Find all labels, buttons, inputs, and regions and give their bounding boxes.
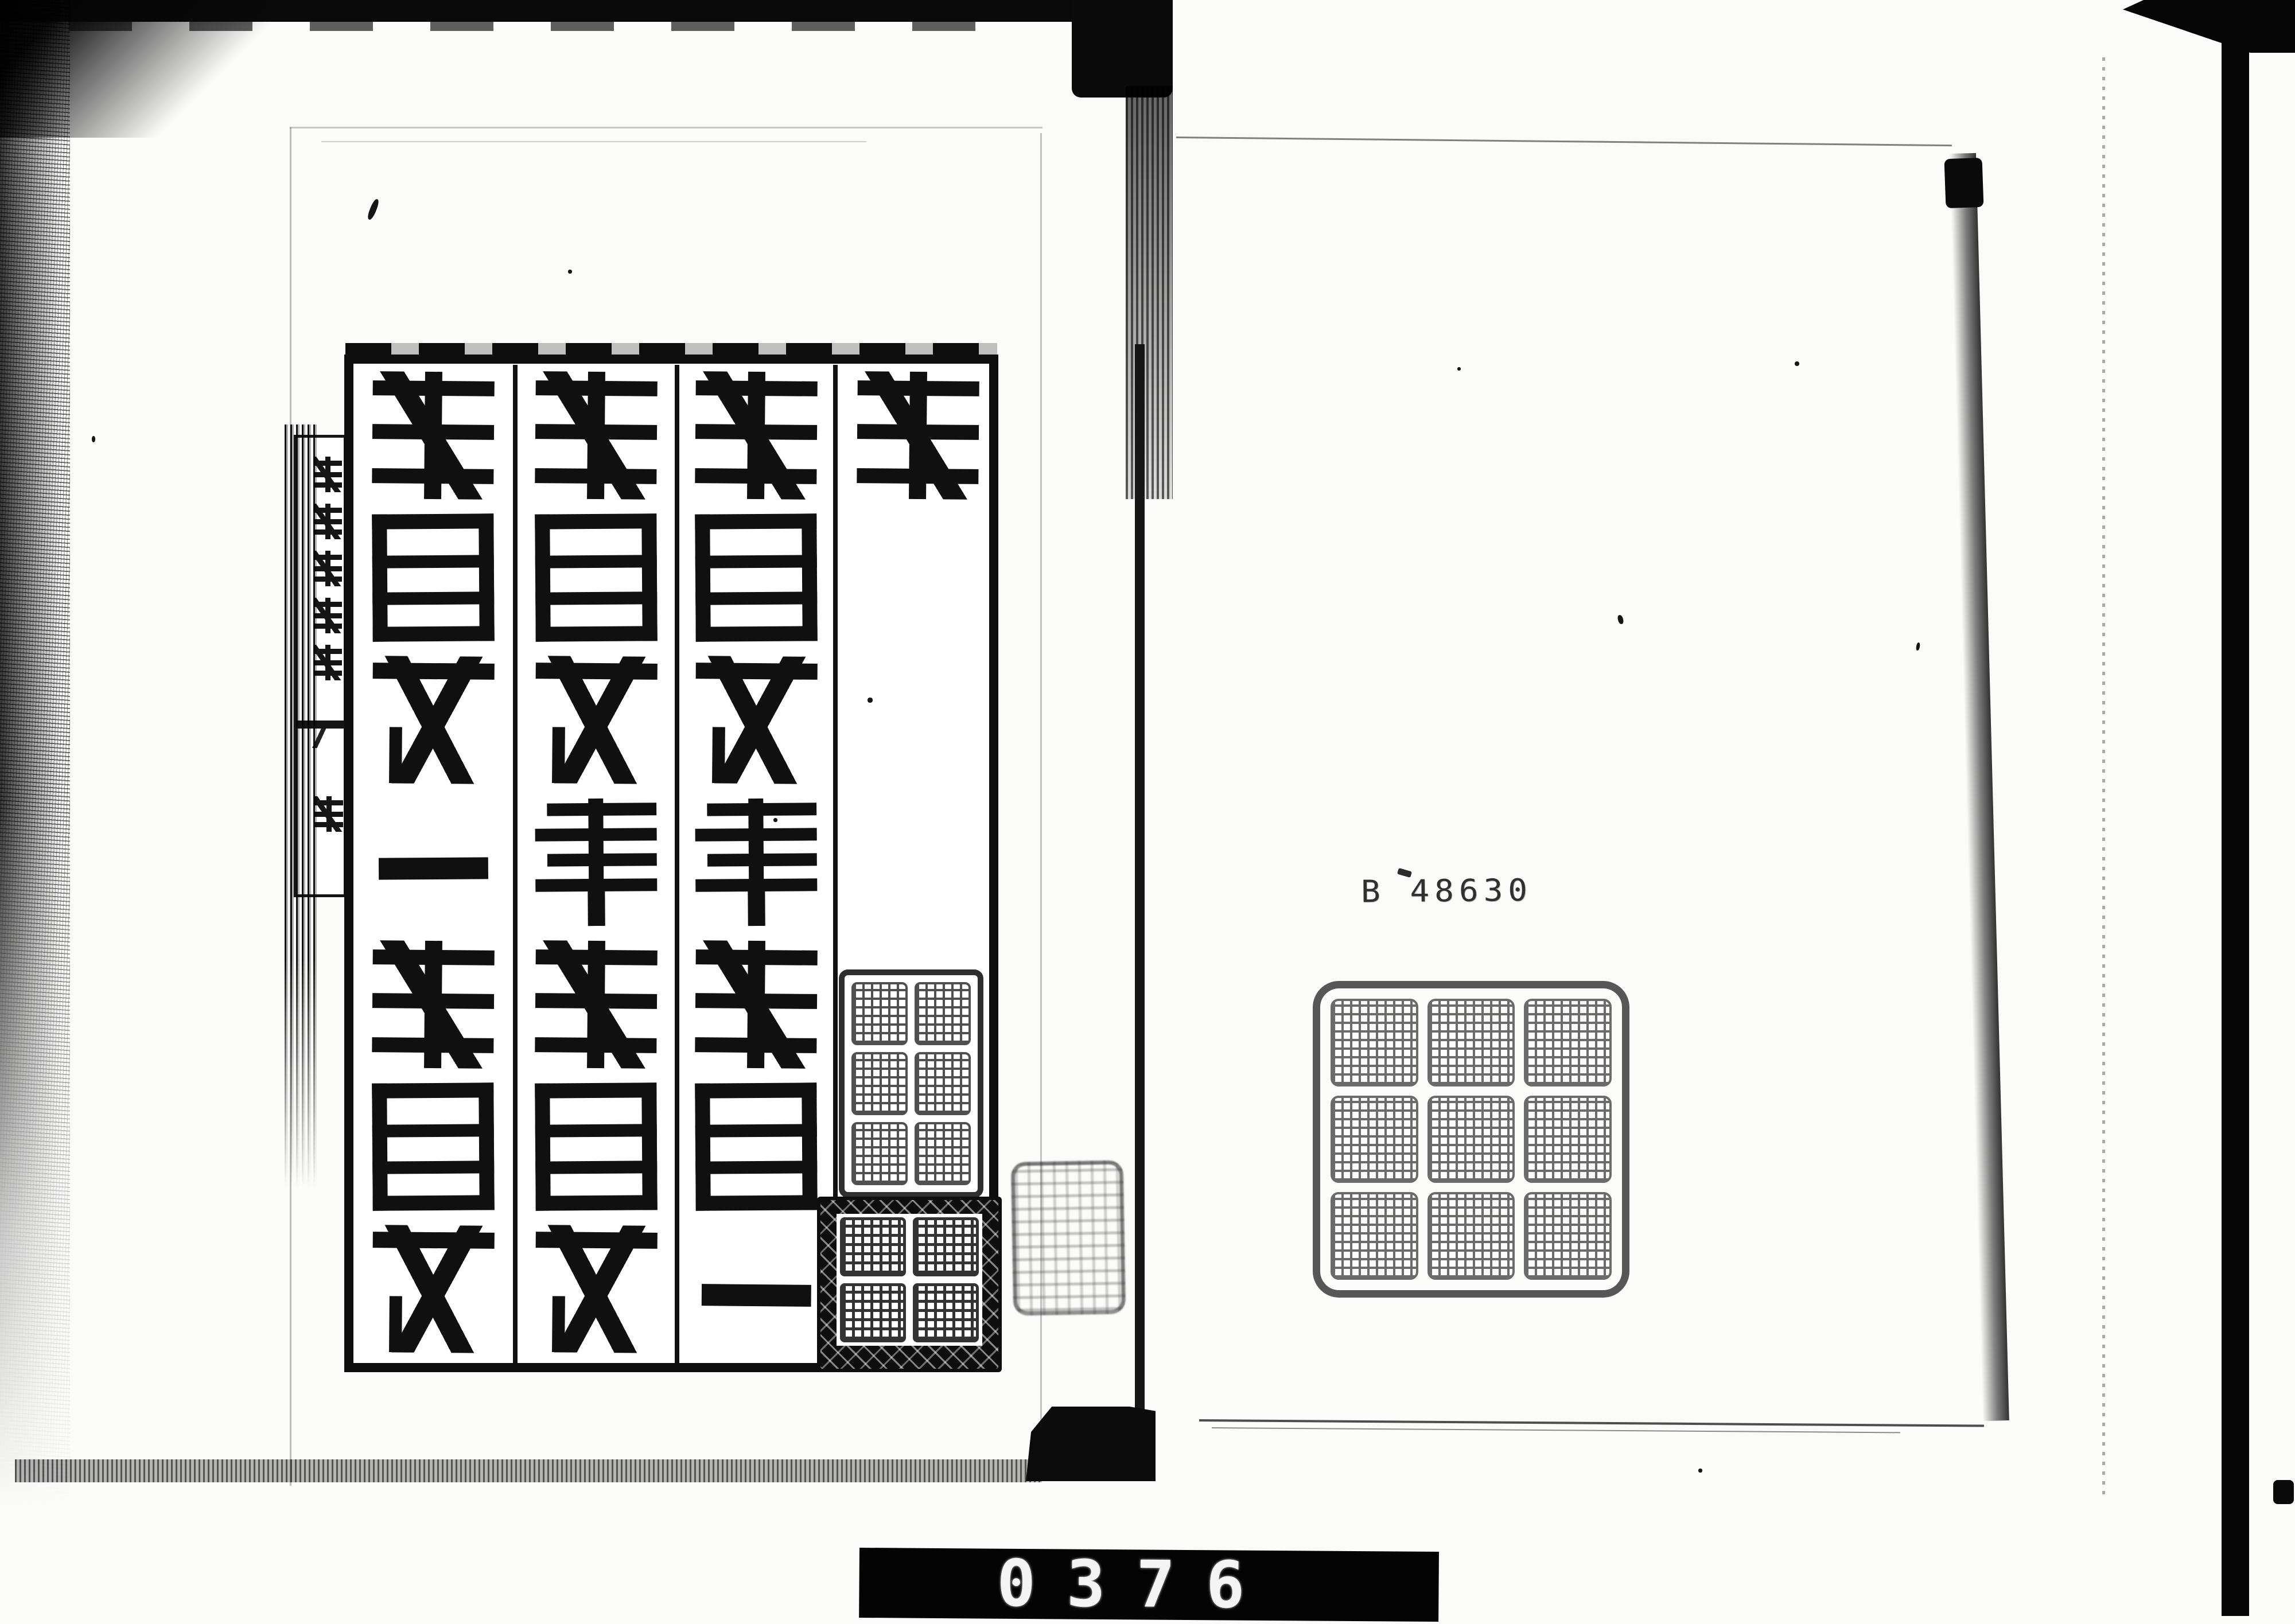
- text-column-3: [520, 372, 672, 1364]
- binding-shadow: [285, 425, 318, 1187]
- glyph: [857, 371, 979, 500]
- seal-char: [915, 982, 971, 1045]
- seal-char: [1524, 1192, 1612, 1280]
- glyph: [372, 1225, 495, 1353]
- seal-char: [840, 1217, 906, 1276]
- seal-char: [913, 1283, 979, 1342]
- glyph: [372, 798, 495, 926]
- call-number-stamp: B 48630: [1361, 873, 1533, 909]
- seal-char: [851, 982, 908, 1045]
- scan-right-black-band: [2222, 0, 2249, 1616]
- text-column-4: [356, 372, 511, 1364]
- spine-section-chars: [314, 796, 343, 833]
- scan-top-right-corner: [2123, 0, 2295, 53]
- rect-library-seal: [839, 969, 983, 1198]
- right-edge-blob: [2273, 1480, 2294, 1504]
- seal-char: [1331, 1096, 1418, 1183]
- text-column-2: [682, 372, 831, 1364]
- seal-char: [913, 1217, 979, 1276]
- nanki-bunko-seal: [817, 1197, 1002, 1372]
- seal-char: [1524, 1096, 1612, 1183]
- seal-char: [1331, 1192, 1418, 1280]
- left-cover-bottom-edge: [15, 1459, 1042, 1482]
- right-page-bottom-edge-2: [1212, 1427, 1900, 1433]
- gutter-line: [1135, 344, 1145, 1411]
- glyph: [535, 940, 658, 1069]
- glyph: [372, 371, 495, 500]
- loose-page-edge-line: [2102, 54, 2105, 1494]
- glyph: [695, 371, 818, 500]
- ink-speck: [773, 818, 777, 822]
- right-page-right-edge-shadow: [1950, 153, 2009, 1421]
- ink-speck: [92, 436, 95, 442]
- seal-char: [915, 1052, 971, 1115]
- scan-left-edge-speckle: [0, 0, 70, 1537]
- seal-char: [1427, 1096, 1515, 1183]
- left-page-top-edge: [290, 127, 1043, 128]
- glyph: [535, 798, 658, 926]
- glyph: [535, 656, 658, 784]
- ink-speck: [1617, 614, 1624, 625]
- seal-char: [851, 1052, 908, 1115]
- seal-char: [1524, 999, 1612, 1086]
- faint-gutter-stamp: [1011, 1160, 1126, 1315]
- ink-speck: [1916, 642, 1920, 651]
- spine-section-char: [314, 796, 343, 832]
- glyph: [695, 1082, 818, 1210]
- microfilm-counter-bar: 0376: [859, 1548, 1439, 1622]
- glyph: [695, 798, 818, 926]
- seal-char: [840, 1283, 906, 1342]
- university-library-seal: [1313, 981, 1629, 1298]
- ink-speck: [568, 270, 572, 274]
- glyph: [695, 1225, 818, 1353]
- right-page-corner-mark: [1944, 158, 1984, 208]
- glyph: [695, 656, 818, 784]
- binding-clamp-top: [1072, 0, 1173, 98]
- ink-speck: [1698, 1469, 1702, 1473]
- ink-speck: [1457, 367, 1461, 371]
- right-page-bottom-edge: [1199, 1419, 1984, 1427]
- glyph: [535, 1225, 658, 1353]
- glyph: [372, 1082, 495, 1210]
- glyph: [372, 513, 495, 641]
- seal-char: [851, 1122, 908, 1185]
- glyph: [372, 656, 495, 784]
- frame-counter-digits: 0376: [997, 1550, 1276, 1619]
- binding-clamp-bottom: [1026, 1407, 1156, 1481]
- column-divider: [675, 365, 679, 1363]
- nanki-bunko-seal-inner: [837, 1214, 982, 1346]
- seal-char: [1427, 999, 1515, 1086]
- glyph: [535, 371, 658, 500]
- glyph: [535, 1082, 658, 1210]
- glyph: [535, 513, 658, 641]
- glyph: [695, 513, 818, 641]
- glyph: [372, 940, 495, 1069]
- ink-speck: [868, 698, 873, 703]
- ink-speck: [366, 198, 380, 220]
- column-divider: [513, 365, 518, 1363]
- seal-char: [1427, 1192, 1515, 1280]
- right-page-top-edge: [1176, 137, 1952, 146]
- glyph: [695, 940, 818, 1069]
- seal-char: [915, 1122, 971, 1185]
- left-page-crease: [321, 141, 866, 142]
- ink-speck: [1795, 361, 1799, 366]
- gutter-shadow: [1126, 86, 1173, 499]
- seal-char: [1331, 999, 1418, 1086]
